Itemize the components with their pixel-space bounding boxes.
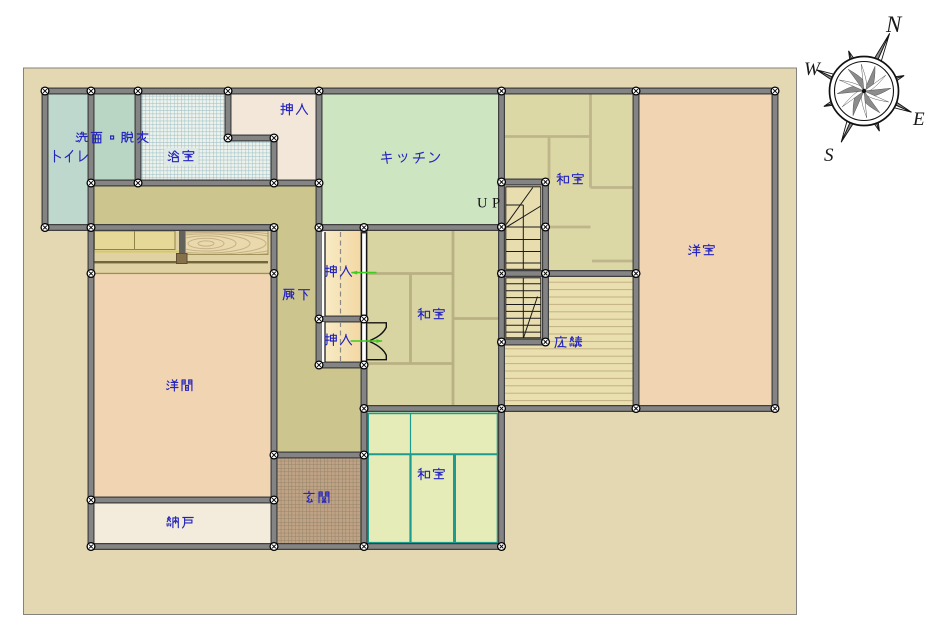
- svg-text:S: S: [824, 145, 834, 166]
- svg-text:UP: UP: [477, 196, 505, 212]
- svg-text:N: N: [885, 12, 903, 37]
- svg-text:W: W: [804, 59, 822, 80]
- svg-text:E: E: [912, 109, 925, 130]
